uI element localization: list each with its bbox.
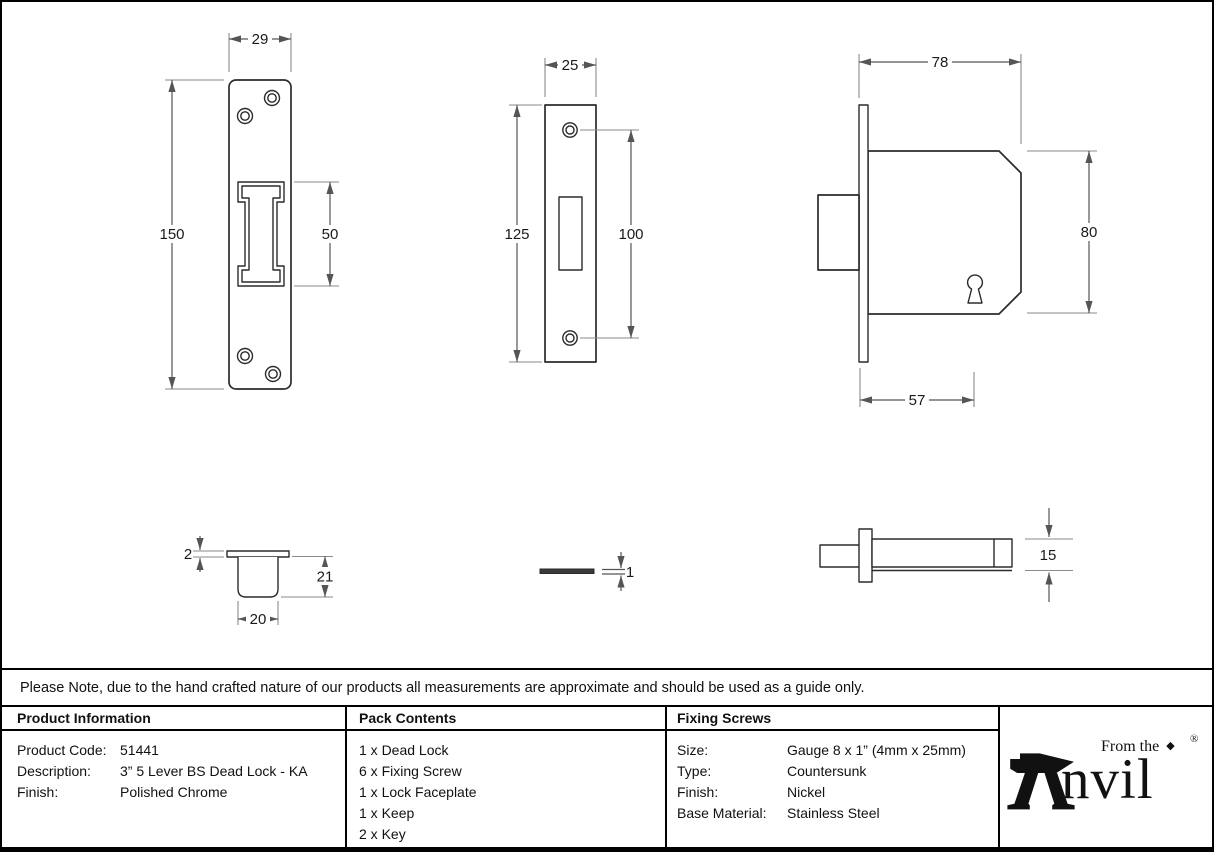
lock-top-body — [872, 539, 1012, 567]
pack-contents-header: Pack Contents — [347, 707, 665, 731]
pack-item: 2 x Key — [359, 824, 665, 845]
lock-top-bolt — [820, 545, 860, 567]
logo-tagline-text: From the — [1101, 738, 1159, 755]
spec-sheet: 29 150 50 — [0, 0, 1214, 852]
screw-material-value: Stainless Steel — [787, 803, 880, 824]
dim-label-keep-height: 150 — [159, 226, 184, 243]
pack-contents-column: Pack Contents 1 x Dead Lock 6 x Fixing S… — [345, 707, 665, 847]
dim-label-lock-width: 78 — [932, 54, 949, 71]
lock-side-view: 78 80 57 — [818, 53, 1103, 409]
screw-size-value: Gauge 8 x 1” (4mm x 25mm) — [787, 740, 966, 761]
screw-type-value: Countersunk — [787, 761, 866, 782]
keep-front-view: 29 150 50 — [156, 30, 342, 389]
dim-label-cup-depth: 21 — [317, 569, 334, 586]
faceplate-bolt-slot — [559, 197, 582, 270]
logo-name-text: nvil — [1061, 748, 1154, 811]
product-code-label: Product Code: — [17, 740, 120, 761]
description-value: 3” 5 Lever BS Dead Lock - KA — [120, 761, 308, 782]
product-code-value: 51441 — [120, 740, 159, 761]
lock-faceplate-edge — [859, 105, 868, 362]
keep-flange — [227, 551, 289, 557]
screw-material-label: Base Material: — [677, 803, 787, 824]
screw-size-label: Size: — [677, 740, 787, 761]
finish-label: Finish: — [17, 782, 120, 803]
description-row: Description: 3” 5 Lever BS Dead Lock - K… — [17, 761, 345, 782]
lock-top-faceplate — [859, 529, 872, 582]
dim-label-lock-depth: 57 — [909, 392, 926, 409]
screw-finish-row: Finish: Nickel — [677, 782, 998, 803]
screw-type-row: Type: Countersunk — [677, 761, 998, 782]
screw-finish-label: Finish: — [677, 782, 787, 803]
brand-logo-cell: nvil From the◆ ® — [998, 707, 1212, 847]
lock-top-view: 15 — [820, 508, 1073, 602]
description-label: Description: — [17, 761, 120, 782]
screw-finish-value: Nickel — [787, 782, 825, 803]
diamond-icon: ◆ — [1166, 740, 1174, 752]
dim-label-flange-thickness: 2 — [184, 546, 192, 563]
logo-tagline: From the◆ — [1101, 738, 1175, 756]
product-information-header: Product Information — [2, 707, 345, 731]
finish-value: Polished Chrome — [120, 782, 227, 803]
dim-label-faceplate-height: 125 — [504, 226, 529, 243]
dim-label-lock-height: 80 — [1081, 224, 1098, 241]
finish-row: Finish: Polished Chrome — [17, 782, 345, 803]
screw-type-label: Type: — [677, 761, 787, 782]
dim-label-cup-width: 20 — [250, 611, 267, 628]
pack-item: 6 x Fixing Screw — [359, 761, 665, 782]
pack-item: 1 x Lock Faceplate — [359, 782, 665, 803]
keep-profile-view: 2 21 20 — [184, 536, 337, 628]
faceplate-front-view: 25 125 100 — [501, 56, 647, 362]
dim-label-faceplate-width: 25 — [562, 57, 579, 74]
lock-bolt — [818, 195, 859, 270]
screw-size-row: Size: Gauge 8 x 1” (4mm x 25mm) — [677, 740, 998, 761]
lock-case — [868, 151, 1021, 314]
faceplate-edge-plate — [540, 569, 594, 574]
pack-item: 1 x Keep — [359, 803, 665, 824]
keep-cup — [238, 557, 278, 597]
note-text: Please Note, due to the hand crafted nat… — [20, 680, 864, 696]
fixing-screws-header: Fixing Screws — [667, 707, 998, 731]
fixing-screws-column: Fixing Screws Size: Gauge 8 x 1” (4mm x … — [665, 707, 998, 847]
brand-logo: nvil From the◆ ® — [1006, 735, 1206, 819]
measurement-note: Please Note, due to the hand crafted nat… — [2, 668, 1212, 705]
faceplate-profile-view: 1 — [540, 552, 634, 591]
dim-label-faceplate-holes: 100 — [618, 226, 643, 243]
dim-label-case-thickness: 15 — [1040, 547, 1057, 564]
pack-item: 1 x Dead Lock — [359, 740, 665, 761]
dim-label-plate-thickness: 1 — [626, 564, 634, 581]
technical-drawing: 29 150 50 — [2, 2, 1212, 666]
spec-table: Product Information Product Code: 51441 … — [2, 705, 1212, 847]
screw-material-row: Base Material: Stainless Steel — [677, 803, 998, 824]
product-code-row: Product Code: 51441 — [17, 740, 345, 761]
dim-label-keep-slot: 50 — [322, 226, 339, 243]
product-information-column: Product Information Product Code: 51441 … — [2, 707, 345, 847]
registered-mark: ® — [1190, 733, 1198, 745]
logo-wordmark: nvil — [1061, 751, 1154, 808]
dim-label-keep-width: 29 — [252, 31, 269, 48]
